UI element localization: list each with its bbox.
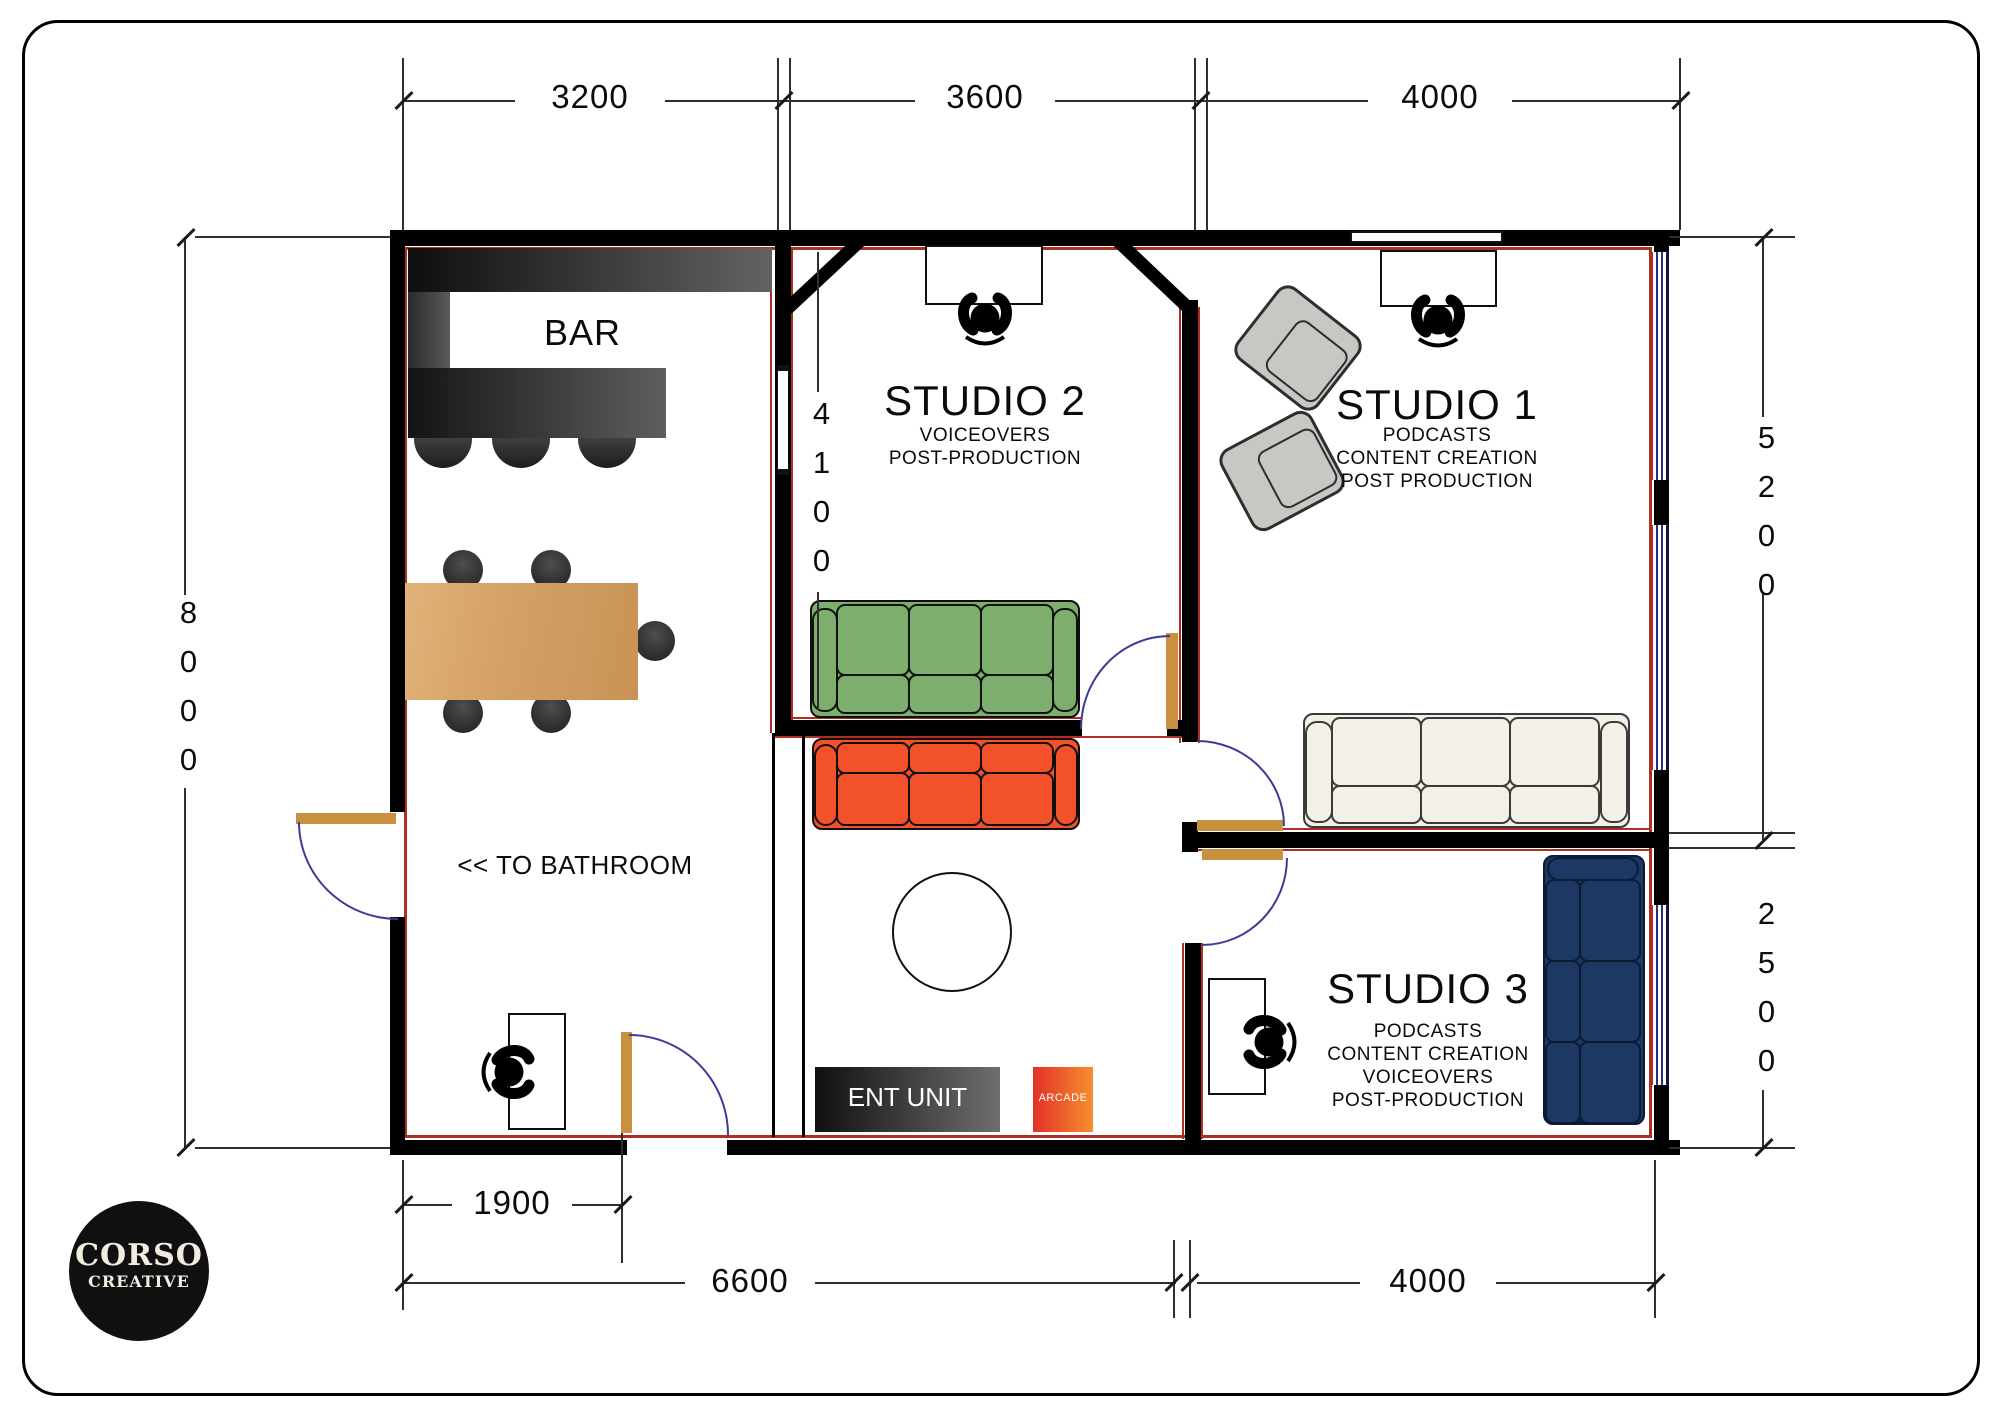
dim-line [1490, 1282, 1655, 1284]
sofa-arm [814, 744, 838, 826]
sofa-cushion [908, 742, 982, 774]
studio3-name: STUDIO 3 [1278, 966, 1578, 1012]
sofa-green [810, 600, 1080, 718]
wall-lounge-studio3 [1185, 943, 1201, 1142]
dim-line [184, 237, 186, 595]
wall-right-pier-1 [1654, 480, 1669, 525]
ext-line [789, 58, 791, 230]
corridor-wall-line-right [802, 736, 805, 1137]
sofa-arm [812, 608, 838, 712]
wall-right-pier-top [1654, 230, 1669, 254]
ext-line [621, 1133, 623, 1263]
dim-line [1512, 100, 1680, 102]
wall-left-lower [390, 917, 405, 1155]
wall-notch-studio1 [1350, 231, 1503, 243]
sofa-cushion [1509, 785, 1600, 824]
logo-line1: CORSO [69, 1241, 209, 1271]
wall-studio1-studio3 [1197, 832, 1655, 848]
sofa-cushion [908, 604, 982, 676]
sofa-arm [1547, 857, 1639, 881]
dim-line [1197, 1282, 1367, 1284]
sofa-arm [1054, 744, 1078, 826]
wall-bottom-left [390, 1140, 627, 1155]
studio1-name: STUDIO 1 [1287, 382, 1587, 428]
sofa-cushion [980, 604, 1054, 676]
sofa-cushion [980, 772, 1054, 826]
studio1-service: CONTENT CREATION [1287, 447, 1587, 470]
floor-plan-page: BAR << TO BATHROOM STUDIO 2 VOICEOVERS P… [0, 0, 2000, 1414]
ext-line [195, 236, 390, 238]
dim-line [403, 100, 515, 102]
person-icon [475, 1036, 537, 1108]
window-right-middle [1651, 525, 1669, 770]
dim-line [570, 1204, 622, 1206]
studio3-service: VOICEOVERS [1278, 1066, 1578, 1089]
bar-label: BAR [500, 310, 665, 356]
studio1-service: POST PRODUCTION [1287, 470, 1587, 493]
back-bar-counter [408, 248, 772, 292]
wall-door-junction-block [1182, 822, 1198, 852]
corridor-wall-line-left [772, 733, 775, 1137]
sofa-cushion [1420, 785, 1511, 824]
window-studio2-left-wall [777, 365, 789, 475]
window-right-upper [1651, 252, 1669, 480]
dim-line-4100-upper [817, 252, 819, 392]
dim-line [1055, 100, 1368, 102]
sofa-cushion [836, 674, 910, 714]
ext-line [195, 1147, 390, 1149]
dim-line-4100-lower [817, 592, 819, 710]
wall-right-pier-2 [1654, 770, 1669, 905]
studio2-service: VOICEOVERS [835, 424, 1135, 447]
dim-label-8000: 8000 [163, 595, 205, 787]
studio2-left-wall-redline-b [791, 247, 793, 720]
sofa-orange [812, 738, 1080, 830]
dining-table [405, 583, 638, 700]
dim-label-4000-bottom: 4000 [1360, 1264, 1496, 1299]
studio3-service: POST-PRODUCTION [1278, 1089, 1578, 1112]
dim-line [1762, 237, 1764, 417]
sofa-cushion [1545, 1041, 1581, 1124]
sofa-cushion [836, 742, 910, 774]
dim-label-3200: 3200 [520, 80, 660, 115]
studio2-left-wall-redline-a [770, 247, 772, 733]
sofa-cushion [908, 674, 982, 714]
logo-line2: CREATIVE [69, 1273, 209, 1291]
sofa-cushion [1420, 717, 1511, 787]
dim-line [665, 100, 915, 102]
dim-label-3600: 3600 [915, 80, 1055, 115]
sofa-cushion [1579, 879, 1641, 962]
round-table [892, 872, 1012, 992]
sofa-cream [1303, 713, 1630, 828]
sofa-navy [1543, 855, 1645, 1125]
sofa-arm [1600, 721, 1628, 823]
person-icon [1402, 292, 1474, 354]
sofa-cushion [1579, 1041, 1641, 1124]
studio3-service: PODCASTS [1278, 1020, 1578, 1043]
sofa-cushion [1545, 960, 1581, 1043]
sofa-cushion [836, 772, 910, 826]
ext-line [402, 58, 404, 230]
wall-right-pier-bottom [1654, 1085, 1669, 1155]
studio3-service: CONTENT CREATION [1278, 1043, 1578, 1066]
bar-counter-front [408, 368, 666, 438]
studio1-service: PODCASTS [1287, 424, 1587, 447]
ext-line [1669, 832, 1795, 834]
ext-line [777, 58, 779, 230]
person-icon [949, 290, 1021, 352]
ext-line [1669, 236, 1795, 238]
studio3-wall-redline-a [1182, 943, 1184, 1139]
dining-chair [635, 621, 675, 661]
wall-studio2-bottom [775, 720, 1082, 736]
dim-label-2500: 2500 [1741, 896, 1783, 1088]
sofa-arm [1305, 721, 1333, 823]
dim-line [1762, 1090, 1764, 1148]
sofa-cushion [980, 742, 1054, 774]
ext-line [1669, 847, 1795, 849]
sofa-cushion [1579, 960, 1641, 1043]
ext-line [1194, 58, 1196, 230]
dim-label-4100: 4100 [798, 396, 838, 588]
sofa-cushion [980, 674, 1054, 714]
window-right-lower [1651, 905, 1669, 1085]
inner-wall-line-bottom [404, 1135, 1652, 1138]
wall-left-upper [390, 230, 405, 812]
dim-label-4000-top: 4000 [1370, 80, 1510, 115]
dim-line [1762, 592, 1764, 840]
studio3-wall-redline-b [1201, 943, 1203, 1139]
wall-bottom-right [727, 1140, 1680, 1155]
dim-label-6600: 6600 [685, 1264, 815, 1299]
dim-label-5200: 5200 [1741, 420, 1783, 590]
studio2-service: POST-PRODUCTION [835, 447, 1135, 470]
sofa-cushion [1545, 879, 1581, 962]
arcade-label: ARCADE [1033, 1092, 1093, 1104]
dim-line [812, 1282, 1176, 1284]
dim-line [403, 1204, 455, 1206]
sofa-arm [1052, 608, 1078, 712]
studio12-wall-redline-b [1198, 307, 1200, 743]
sofa-cushion [908, 772, 982, 826]
sofa-cushion [1331, 785, 1422, 824]
studio12-wall-redline-a [1179, 303, 1181, 743]
sofa-cushion [1331, 717, 1422, 787]
ext-line [1206, 58, 1208, 230]
dim-label-1900: 1900 [452, 1186, 572, 1221]
dim-line [403, 1282, 690, 1284]
dim-line [184, 788, 186, 1148]
wall-lounge-studio1 [1182, 300, 1198, 742]
ext-line [1669, 1147, 1795, 1149]
logo-badge: CORSO CREATIVE [69, 1201, 209, 1341]
ext-line [1679, 58, 1681, 230]
sofa-cushion [836, 604, 910, 676]
studio2-name: STUDIO 2 [835, 378, 1135, 424]
ext-line [1654, 1160, 1656, 1318]
ext-line [402, 1160, 404, 1310]
sofa-cushion [1509, 717, 1600, 787]
ent-unit-label: ENT UNIT [815, 1082, 1000, 1113]
bathroom-note: << TO BATHROOM [430, 850, 720, 880]
bar-counter-return [408, 292, 450, 368]
